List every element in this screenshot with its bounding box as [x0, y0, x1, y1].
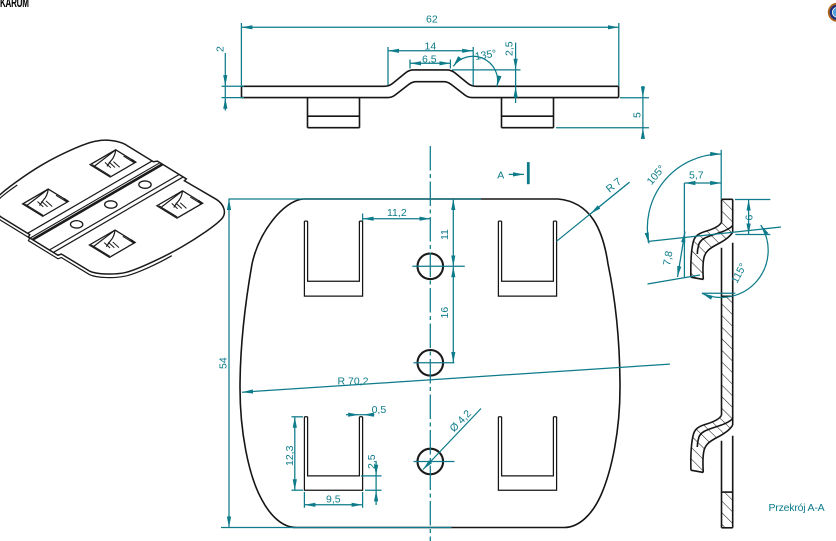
svg-text:11: 11	[439, 229, 451, 240]
svg-text:135°: 135°	[474, 48, 497, 63]
svg-text:5,7: 5,7	[689, 170, 704, 182]
svg-text:A: A	[497, 169, 504, 181]
svg-text:2,5: 2,5	[366, 454, 378, 469]
svg-text:105°: 105°	[645, 163, 668, 187]
svg-text:11,2: 11,2	[387, 207, 407, 219]
svg-text:2,5: 2,5	[504, 41, 516, 56]
svg-text:16: 16	[439, 307, 451, 319]
svg-text:R 70,2: R 70,2	[338, 376, 369, 388]
svg-text:2: 2	[215, 46, 227, 52]
svg-text:6: 6	[744, 215, 756, 221]
svg-text:14: 14	[425, 40, 437, 52]
svg-text:54: 54	[218, 357, 230, 369]
svg-text:KARUM: KARUM	[0, 0, 29, 11]
svg-text:62: 62	[426, 14, 438, 26]
svg-text:Przekrój A-A: Przekrój A-A	[769, 502, 825, 514]
svg-text:5: 5	[632, 112, 644, 118]
svg-text:0,5: 0,5	[372, 404, 387, 416]
svg-text:7,8: 7,8	[661, 250, 675, 267]
svg-text:12,3: 12,3	[284, 445, 296, 466]
svg-text:9,5: 9,5	[326, 494, 341, 506]
svg-text:6,5: 6,5	[422, 53, 437, 65]
svg-text:R 7: R 7	[604, 176, 624, 196]
